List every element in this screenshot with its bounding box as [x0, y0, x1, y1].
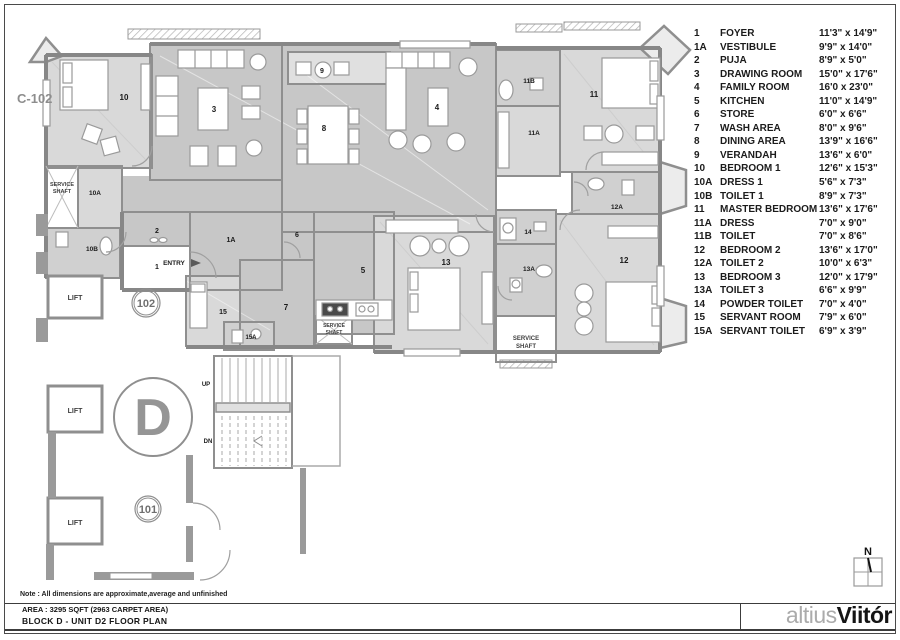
- plan-label-1: 1: [155, 264, 159, 271]
- legend-item-name: DINING AREA: [720, 135, 819, 149]
- legend-row: 9VERANDAH13'6" x 6'0": [694, 149, 888, 163]
- plan-label-8: 8: [322, 124, 327, 133]
- legend-item-id: 1A: [694, 41, 720, 55]
- legend-item-id: 3: [694, 68, 720, 82]
- legend-row: 2PUJA8'9" x 5'0": [694, 54, 888, 68]
- plan-label-101: 101: [139, 504, 157, 516]
- legend-item-size: 13'6" x 6'0": [819, 149, 888, 163]
- legend-item-size: 11'0" x 14'9": [819, 95, 888, 109]
- legend-row: 14POWDER TOILET7'0" x 4'0": [694, 298, 888, 312]
- legend-item-name: BEDROOM 3: [720, 271, 819, 285]
- legend-row: 11MASTER BEDROOM13'6" x 17'6": [694, 203, 888, 217]
- legend-row: 13ATOILET 36'6" x 9'9": [694, 284, 888, 298]
- legend-item-size: 8'9" x 5'0": [819, 54, 888, 68]
- legend-item-id: 11: [694, 203, 720, 217]
- legend-item-size: 13'9" x 16'6": [819, 135, 888, 149]
- plan-label-shaft: SHAFT: [53, 189, 72, 195]
- legend-item-id: 8: [694, 135, 720, 149]
- plan-label-shaft: SHAFT: [516, 344, 536, 350]
- legend-item-id: 10A: [694, 176, 720, 190]
- legend-item-name: TOILET 3: [720, 284, 819, 298]
- legend-row: 12ATOILET 210'0" x 6'3": [694, 257, 888, 271]
- legend-item-size: 7'9" x 6'0": [819, 311, 888, 325]
- legend-item-name: POWDER TOILET: [720, 298, 819, 312]
- brand-logo: altiusViitór: [746, 602, 892, 629]
- legend-row: 10ADRESS 15'6" x 7'3": [694, 176, 888, 190]
- legend-item-size: 12'0" x 17'9": [819, 271, 888, 285]
- legend-item-name: MASTER BEDROOM: [720, 203, 819, 217]
- legend-row: 4FAMILY ROOM16'0 x 23'0": [694, 81, 888, 95]
- legend-item-name: SERVANT ROOM: [720, 311, 819, 325]
- plan-label-c-102: C-102: [17, 91, 52, 106]
- titleblock-bottom-border: [5, 629, 895, 631]
- legend-item-id: 1: [694, 27, 720, 41]
- legend-row: 8DINING AREA13'9" x 16'6": [694, 135, 888, 149]
- legend-item-id: 15A: [694, 325, 720, 339]
- titleblock-vline: [740, 603, 741, 630]
- legend-item-size: 8'9" x 7'3": [819, 190, 888, 204]
- legend-item-name: TOILET 1: [720, 190, 819, 204]
- legend-item-size: 6'9" x 3'9": [819, 325, 888, 339]
- plan-label-entry: ENTRY: [163, 260, 185, 267]
- block-title-text: BLOCK D - UNIT D2 FLOOR PLAN: [22, 616, 167, 626]
- legend-item-name: KITCHEN: [720, 95, 819, 109]
- legend-row: 6STORE6'0" x 6'6": [694, 108, 888, 122]
- legend-row: 13BEDROOM 312'0" x 17'9": [694, 271, 888, 285]
- legend-item-id: 9: [694, 149, 720, 163]
- plan-label-d: D: [134, 389, 172, 447]
- legend-item-id: 15: [694, 311, 720, 325]
- legend-item-size: 6'6" x 9'9": [819, 284, 888, 298]
- legend-item-size: 15'0" x 17'6": [819, 68, 888, 82]
- legend-row: 12BEDROOM 213'6" x 17'0": [694, 244, 888, 258]
- legend-item-id: 4: [694, 81, 720, 95]
- plan-label-102: 102: [137, 298, 155, 310]
- plan-label-10a: 10A: [89, 190, 101, 197]
- legend-item-size: 12'6" x 15'3": [819, 162, 888, 176]
- plan-label-dn: DN: [204, 439, 213, 445]
- legend-item-id: 13A: [694, 284, 720, 298]
- plan-label-3: 3: [212, 105, 217, 114]
- brand-logo-light: altius: [786, 602, 837, 628]
- legend-item-name: PUJA: [720, 54, 819, 68]
- plan-label-shaft: SHAFT: [326, 330, 343, 336]
- plan-label-11: 11: [590, 90, 599, 99]
- plan-label-service: SERVICE: [50, 182, 74, 188]
- staircase: [214, 356, 340, 468]
- plan-label-lift: LIFT: [68, 295, 83, 302]
- plan-label-10b: 10B: [86, 246, 98, 253]
- legend-item-name: TOILET: [720, 230, 819, 244]
- legend-item-name: STORE: [720, 108, 819, 122]
- plan-label-6: 6: [295, 232, 299, 239]
- plan-label-14: 14: [524, 229, 532, 236]
- legend-row: 10BTOILET 18'9" x 7'3": [694, 190, 888, 204]
- legend-item-name: VESTIBULE: [720, 41, 819, 55]
- floor-plan-sheet: 11A234567891010A10B1111A11B1212A1313A141…: [0, 0, 900, 640]
- legend-item-size: 7'0" x 4'0": [819, 298, 888, 312]
- plan-label-11b: 11B: [523, 78, 535, 85]
- area-text: AREA : 3295 SQFT (2963 CARPET AREA): [22, 605, 168, 614]
- plan-label-10: 10: [120, 93, 129, 102]
- legend-item-name: DRESS: [720, 217, 819, 231]
- legend-row: 1FOYER11'3" x 14'9": [694, 27, 888, 41]
- legend-item-id: 12: [694, 244, 720, 258]
- legend-row: 7WASH AREA8'0" x 9'6": [694, 122, 888, 136]
- legend-item-name: FAMILY ROOM: [720, 81, 819, 95]
- brand-logo-bold: Viitór: [837, 602, 892, 628]
- legend-item-id: 10: [694, 162, 720, 176]
- legend-item-name: FOYER: [720, 27, 819, 41]
- plan-label-service: SERVICE: [323, 323, 346, 329]
- legend-item-name: TOILET 2: [720, 257, 819, 271]
- legend-row: 11ADRESS7'0" x 9'0": [694, 217, 888, 231]
- legend-item-size: 5'6" x 7'3": [819, 176, 888, 190]
- plan-label-5: 5: [361, 266, 366, 275]
- lobby-window: [110, 573, 152, 579]
- legend-row: 10BEDROOM 112'6" x 15'3": [694, 162, 888, 176]
- legend-item-size: 7'0" x 9'0": [819, 217, 888, 231]
- legend-item-name: DRAWING ROOM: [720, 68, 819, 82]
- plan-label-up: UP: [202, 382, 210, 388]
- plan-label-12a: 12A: [611, 204, 623, 211]
- plan-label-lift: LIFT: [68, 520, 83, 527]
- plan-label-1a: 1A: [227, 237, 236, 244]
- legend-item-size: 10'0" x 6'3": [819, 257, 888, 271]
- plan-label-service: SERVICE: [513, 336, 539, 342]
- legend-item-id: 6: [694, 108, 720, 122]
- legend-item-size: 9'9" x 14'0": [819, 41, 888, 55]
- legend-item-id: 7: [694, 122, 720, 136]
- legend-item-id: 10B: [694, 190, 720, 204]
- plan-label-13: 13: [442, 258, 451, 267]
- legend-item-size: 13'6" x 17'6": [819, 203, 888, 217]
- legend-item-name: BEDROOM 2: [720, 244, 819, 258]
- legend-item-size: 8'0" x 9'6": [819, 122, 888, 136]
- legend-item-size: 7'0" x 8'6": [819, 230, 888, 244]
- legend-row: 5KITCHEN11'0" x 14'9": [694, 95, 888, 109]
- note-text: Note : All dimensions are approximate,av…: [20, 591, 227, 598]
- legend-item-id: 13: [694, 271, 720, 285]
- plan-label-4: 4: [435, 103, 440, 112]
- legend-item-size: 16'0 x 23'0": [819, 81, 888, 95]
- plan-label-11a: 11A: [528, 130, 540, 137]
- plan-label-15: 15: [219, 309, 227, 316]
- legend-item-id: 2: [694, 54, 720, 68]
- legend-item-size: 6'0" x 6'6": [819, 108, 888, 122]
- plan-label-12: 12: [620, 256, 629, 265]
- legend-item-name: VERANDAH: [720, 149, 819, 163]
- legend-item-id: 11B: [694, 230, 720, 244]
- legend-item-size: 13'6" x 17'0": [819, 244, 888, 258]
- plan-label-2: 2: [155, 228, 159, 235]
- legend-row: 3DRAWING ROOM15'0" x 17'6": [694, 68, 888, 82]
- plan-label-7: 7: [284, 303, 289, 312]
- legend-row: 11BTOILET7'0" x 8'6": [694, 230, 888, 244]
- plan-label-n: N: [864, 546, 872, 558]
- plan-label-lift: LIFT: [68, 408, 83, 415]
- plan-label-13a: 13A: [523, 266, 535, 273]
- legend-item-id: 14: [694, 298, 720, 312]
- legend-item-name: DRESS 1: [720, 176, 819, 190]
- north-indicator: [854, 558, 882, 586]
- legend-item-name: SERVANT TOILET: [720, 325, 819, 339]
- legend-item-size: 11'3" x 14'9": [819, 27, 888, 41]
- plan-label-15a: 15A: [245, 335, 257, 341]
- legend-item-id: 5: [694, 95, 720, 109]
- legend-item-name: BEDROOM 1: [720, 162, 819, 176]
- legend-item-name: WASH AREA: [720, 122, 819, 136]
- legend-item-id: 12A: [694, 257, 720, 271]
- legend-item-id: 11A: [694, 217, 720, 231]
- legend-row: 15ASERVANT TOILET6'9" x 3'9": [694, 325, 888, 339]
- legend-row: 15SERVANT ROOM7'9" x 6'0": [694, 311, 888, 325]
- plan-label-9: 9: [320, 68, 324, 75]
- legend: 1FOYER11'3" x 14'9"1AVESTIBULE9'9" x 14'…: [694, 27, 888, 339]
- legend-row: 1AVESTIBULE9'9" x 14'0": [694, 41, 888, 55]
